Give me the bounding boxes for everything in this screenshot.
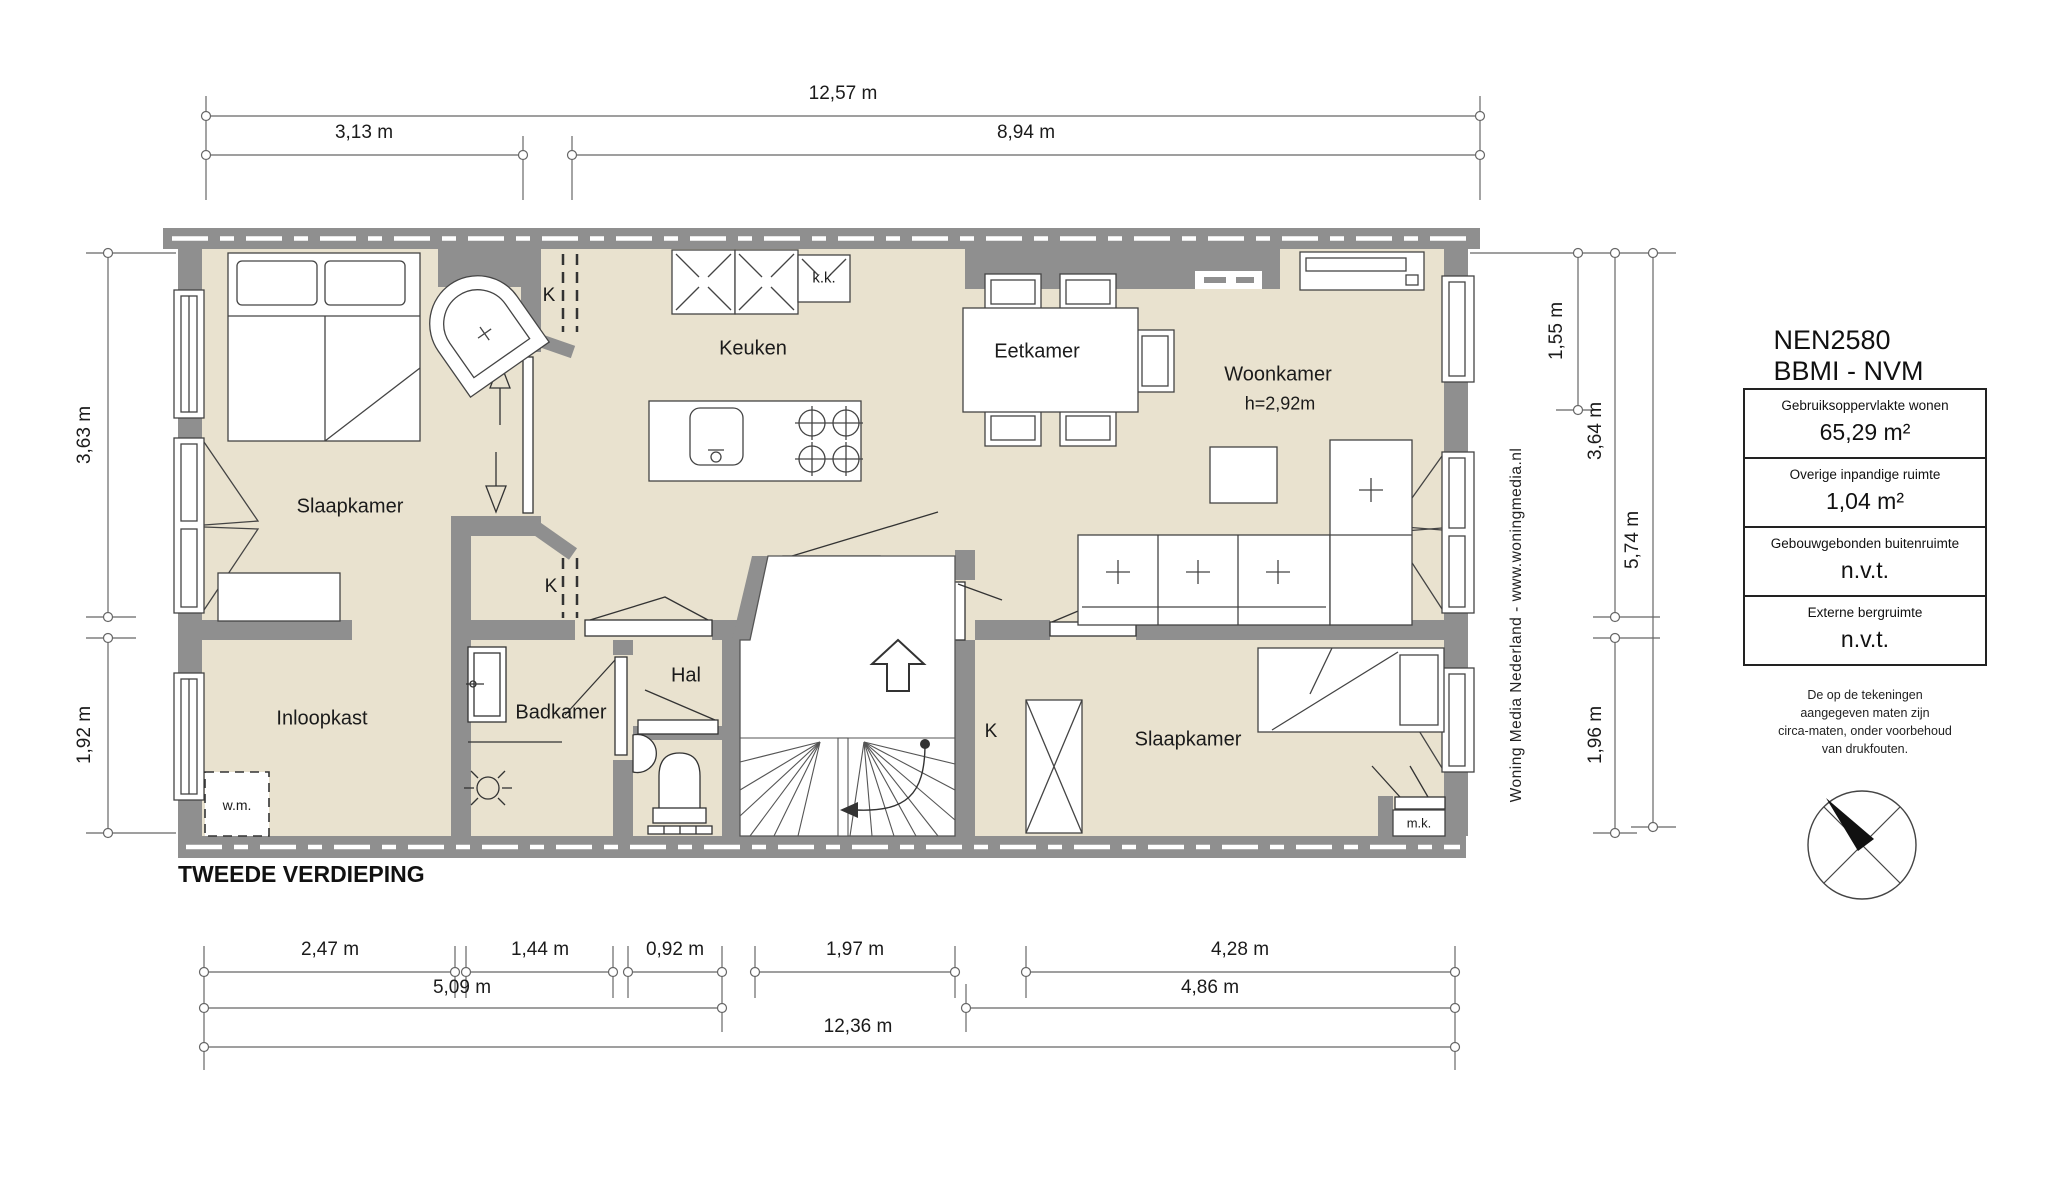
room-label-inloopkast: Inloopkast [276,708,367,731]
sink [690,408,743,465]
disclaimer-line1: De op de tekeningen aangegeven maten zij… [1774,686,1957,722]
dim-bottom-total: 12,36 m [824,1016,893,1038]
chimney-niche [1195,271,1262,289]
info-row: Gebouwgebonden buitenruimte n.v.t. [1745,526,1985,595]
sofa-chaise [1330,440,1412,625]
dim-right-1: 1,55 m [1546,302,1568,360]
room-label-badkamer: Badkamer [515,702,606,725]
info-row-label: Overige inpandige ruimte [1749,467,1981,482]
info-panel: Gebruiksoppervlakte wonen 65,29 m² Overi… [1743,388,1987,666]
dim-top-right: 8,94 m [997,122,1055,144]
dim-bottom-5: 4,28 m [1211,939,1269,961]
closet-label-k-right: K [985,721,998,743]
label-wm: w.m. [223,797,252,813]
info-row-value: 1,04 m² [1749,488,1981,515]
label-mk: m.k. [1407,816,1432,831]
dim-bottom-1: 2,47 m [301,939,359,961]
dim-bottom-row2-left: 5,09 m [433,977,491,999]
room-label-slaapkamer-right: Slaapkamer [1135,729,1242,752]
toilet [659,753,700,815]
info-row-label: Externe bergruimte [1749,605,1981,620]
room-label-woonkamer: Woonkamer [1224,364,1331,387]
closet-label-k-mid: K [545,576,558,598]
info-row: Gebruiksoppervlakte wonen 65,29 m² [1745,390,1985,457]
info-row-label: Gebouwgebonden buitenruimte [1749,536,1981,551]
dim-bottom-2: 1,44 m [511,939,569,961]
dresser [218,573,340,621]
plan-title: TWEEDE VERDIEPING [178,861,425,888]
dim-top-total: 12,57 m [809,83,878,105]
info-row-value: 65,29 m² [1749,419,1981,446]
stairwell [740,556,955,836]
room-label-eetkamer: Eetkamer [994,341,1080,364]
dim-bottom-4: 1,97 m [826,939,884,961]
dim-bottom-3: 0,92 m [646,939,704,961]
info-row-value: n.v.t. [1749,626,1981,653]
dim-right-2: 3,64 m [1585,402,1607,460]
floorplan-drawing [0,0,2048,1179]
sofa [1078,535,1330,625]
dim-right-4: 1,96 m [1585,706,1607,764]
disclaimer: De op de tekeningen aangegeven maten zij… [1774,686,1957,758]
label-kk: k.k. [812,270,835,287]
room-label-slaapkamer-left: Slaapkamer [297,496,404,519]
floorplan-page: 12,57 m 3,13 m 8,94 m 3,63 m 1,92 m 1,55… [0,0,2048,1179]
dim-right-3: 5,74 m [1622,511,1644,569]
closet-label-k-top: K [543,285,556,307]
kitchen-island [649,401,861,481]
dim-left-upper: 3,63 m [74,406,96,464]
info-row-value: n.v.t. [1749,557,1981,584]
info-row: Externe bergruimte n.v.t. [1745,595,1985,664]
side-table [1210,447,1277,503]
watermark: Woning Media Nederland - www.woningmedia… [1508,448,1526,803]
room-label-woonkamer-height: h=2,92m [1245,394,1316,415]
disclaimer-line2: circa-maten, onder voorbehoud van drukfo… [1774,722,1957,758]
info-row-label: Gebruiksoppervlakte wonen [1749,398,1981,413]
room-label-hal: Hal [671,665,701,688]
dim-left-lower: 1,92 m [74,706,96,764]
room-label-keuken: Keuken [719,338,787,361]
info-panel-title: NEN2580 BBMI - NVM [1774,325,1957,387]
info-row: Overige inpandige ruimte 1,04 m² [1745,457,1985,526]
dim-top-left: 3,13 m [335,122,393,144]
dim-bottom-row2-right: 4,86 m [1181,977,1239,999]
compass-icon [1808,791,1916,899]
